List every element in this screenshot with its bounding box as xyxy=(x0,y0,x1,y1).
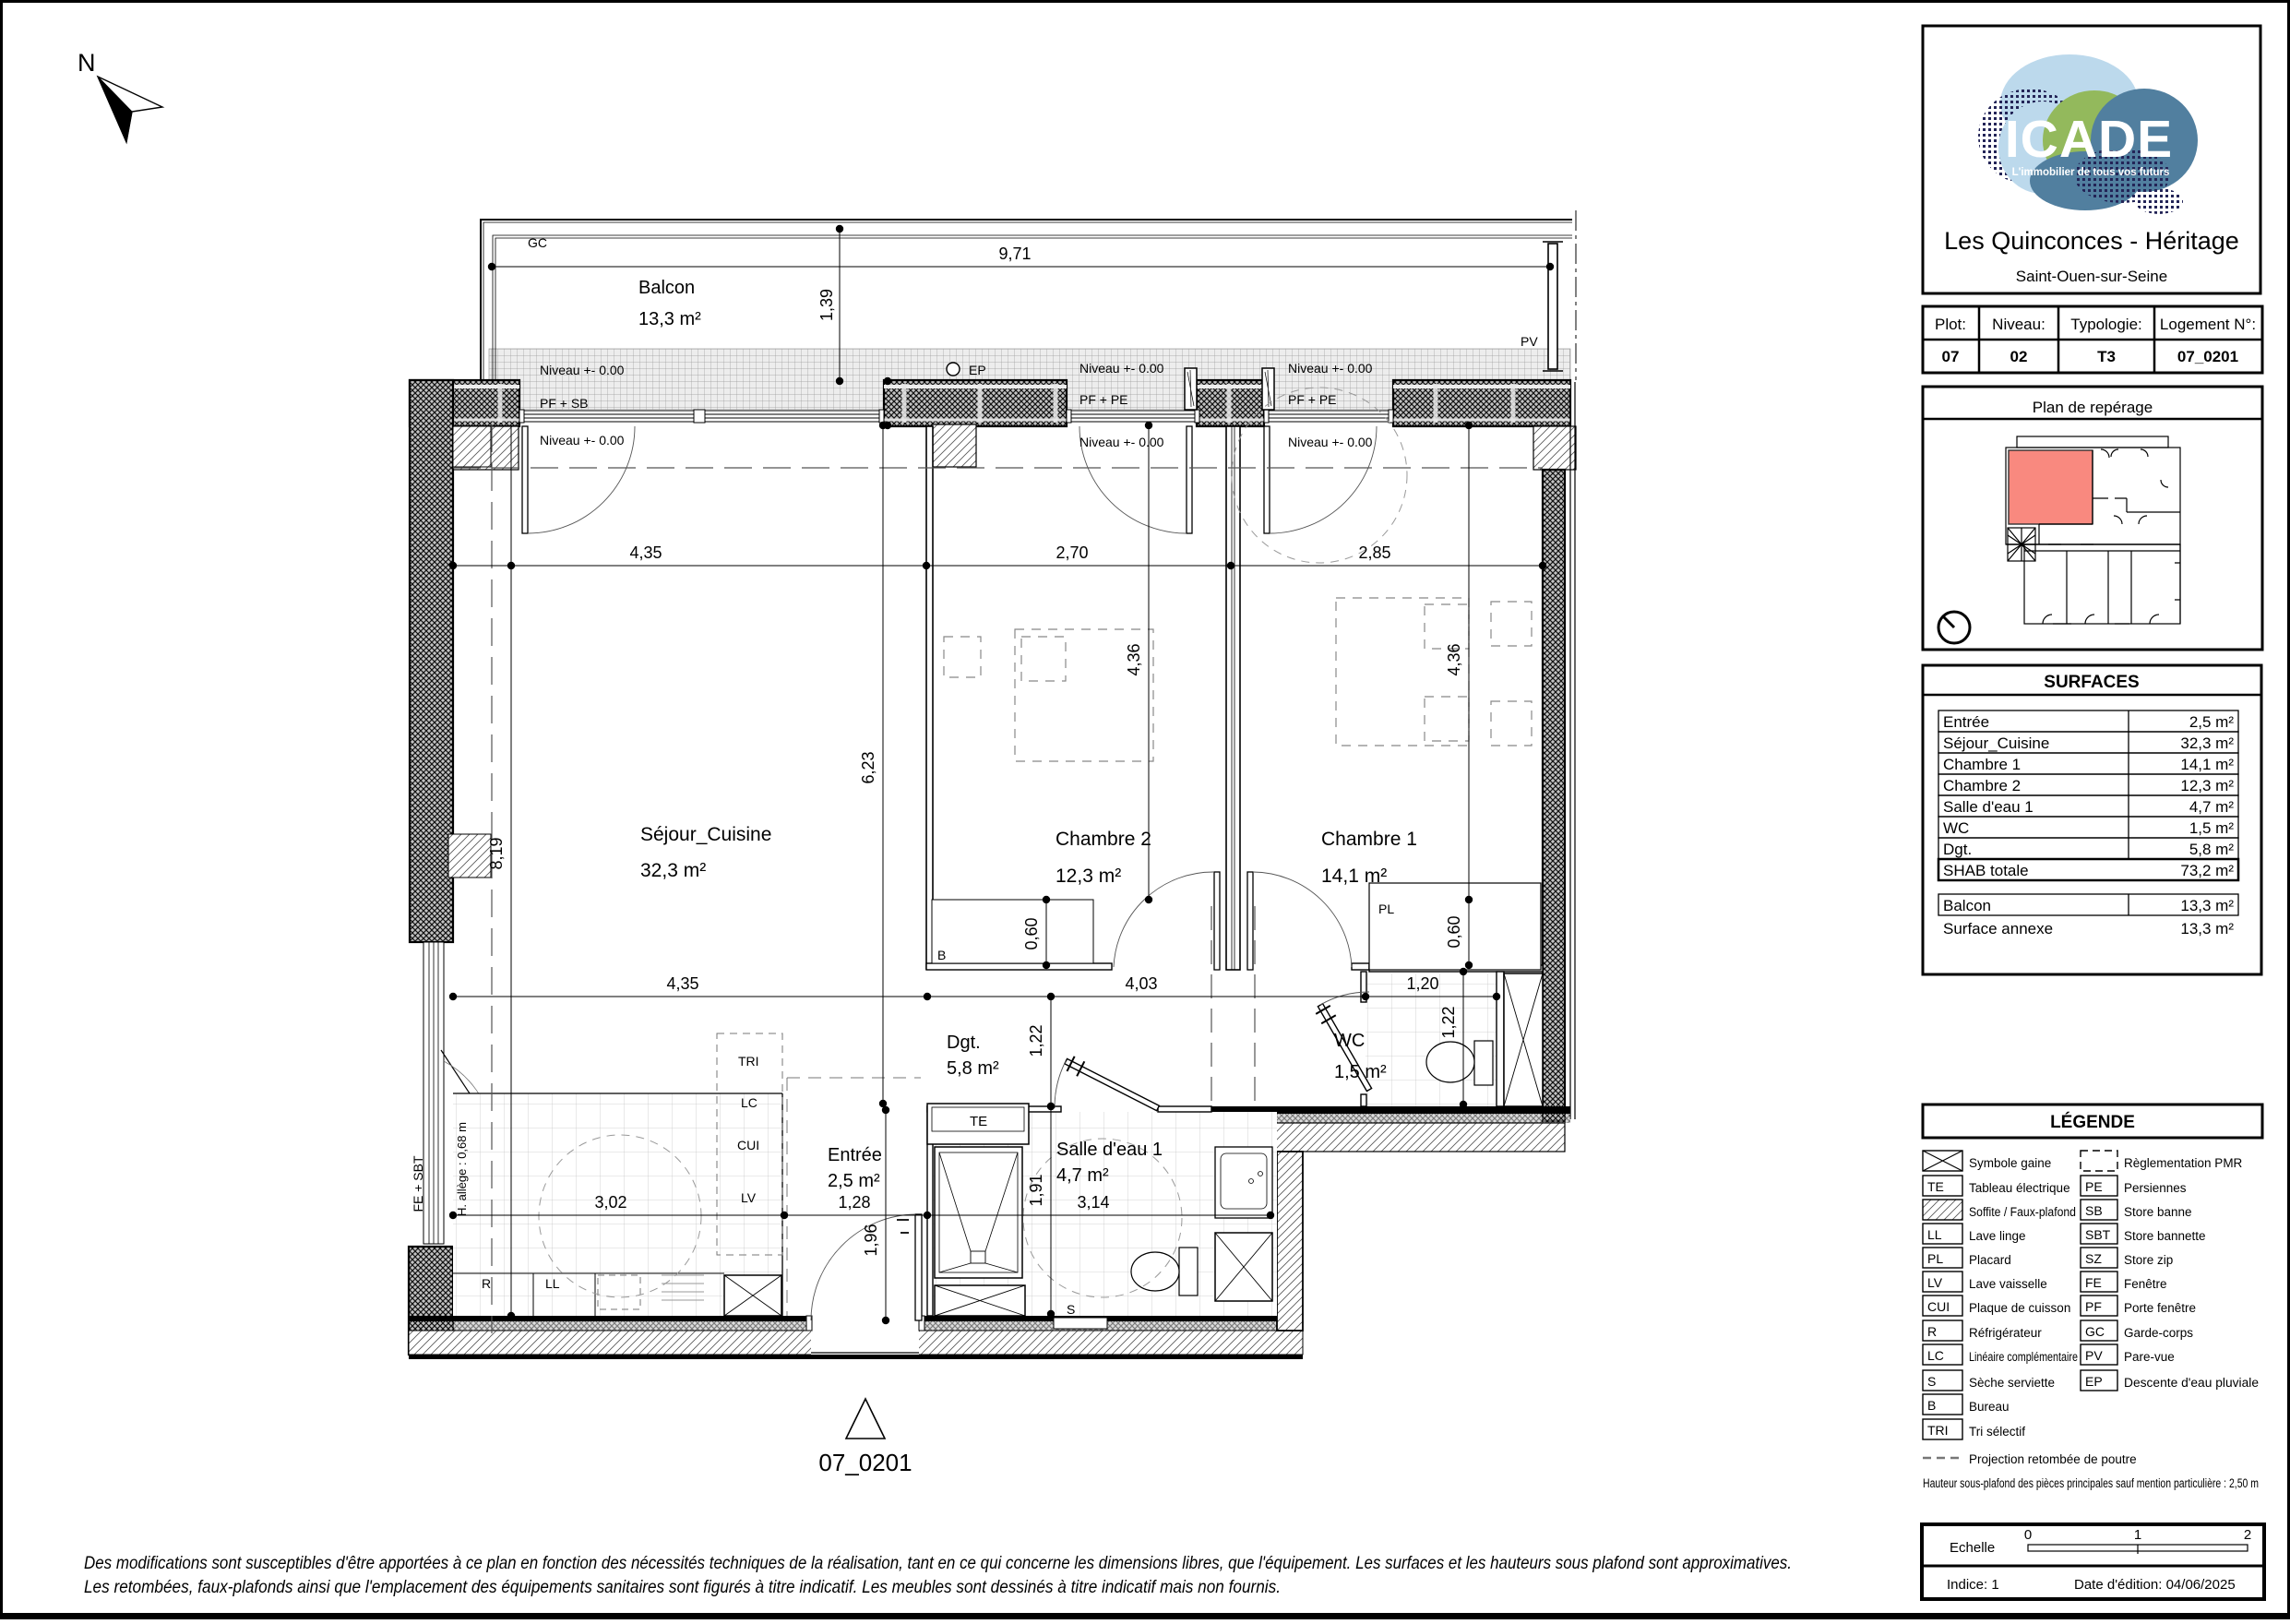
svg-text:Indice: 1: Indice: 1 xyxy=(1947,1577,1999,1593)
svg-text:Persiennes: Persiennes xyxy=(2124,1181,2187,1195)
svg-text:LL: LL xyxy=(545,1276,560,1291)
svg-text:S: S xyxy=(1927,1374,1936,1389)
svg-text:5,8 m²: 5,8 m² xyxy=(947,1058,999,1079)
svg-text:R: R xyxy=(482,1276,491,1291)
svg-text:8,19: 8,19 xyxy=(487,837,506,869)
svg-text:Salle d'eau 1: Salle d'eau 1 xyxy=(1943,798,2034,816)
svg-text:Placard: Placard xyxy=(1969,1253,2011,1267)
svg-text:Logement N°:: Logement N°: xyxy=(2160,316,2256,333)
svg-text:12,3 m²: 12,3 m² xyxy=(2180,777,2234,794)
svg-text:Lave linge: Lave linge xyxy=(1969,1229,2026,1243)
svg-text:0: 0 xyxy=(2024,1527,2032,1543)
svg-text:12,3 m²: 12,3 m² xyxy=(1056,866,1121,887)
svg-text:LV: LV xyxy=(741,1190,757,1205)
svg-text:1,96: 1,96 xyxy=(862,1224,880,1256)
svg-text:2,85: 2,85 xyxy=(1358,543,1390,562)
svg-text:4,36: 4,36 xyxy=(1445,643,1463,675)
svg-text:SZ: SZ xyxy=(2085,1251,2102,1266)
svg-text:4,35: 4,35 xyxy=(666,974,698,993)
svg-text:SHAB totale: SHAB totale xyxy=(1943,862,2029,879)
svg-text:SURFACES: SURFACES xyxy=(2044,673,2139,692)
svg-text:Séjour_Cuisine: Séjour_Cuisine xyxy=(1943,734,2049,752)
svg-text:EP: EP xyxy=(2085,1374,2103,1389)
svg-text:GC: GC xyxy=(2085,1324,2105,1339)
svg-text:Dgt.: Dgt. xyxy=(1943,841,1972,858)
svg-text:3,14: 3,14 xyxy=(1077,1193,1109,1212)
svg-text:Les Quinconces - Héritage: Les Quinconces - Héritage xyxy=(1944,227,2239,255)
svg-text:14,1 m²: 14,1 m² xyxy=(2180,756,2234,773)
svg-text:Tableau électrique: Tableau électrique xyxy=(1969,1181,2070,1195)
svg-text:Chambre 1: Chambre 1 xyxy=(1943,756,2021,773)
svg-text:LÉGENDE: LÉGENDE xyxy=(2050,1112,2135,1132)
svg-text:PL: PL xyxy=(1378,902,1394,916)
svg-text:4,7 m²: 4,7 m² xyxy=(1056,1165,1109,1186)
svg-text:Plot:: Plot: xyxy=(1935,316,1966,333)
svg-text:FE: FE xyxy=(2085,1275,2102,1290)
svg-text:Niveau +- 0.00: Niveau +- 0.00 xyxy=(1079,435,1164,449)
svg-text:1,28: 1,28 xyxy=(838,1193,870,1212)
svg-text:0,60: 0,60 xyxy=(1445,915,1463,948)
svg-text:13,3 m²: 13,3 m² xyxy=(2180,897,2234,914)
svg-text:Projection retombée de poutre: Projection retombée de poutre xyxy=(1969,1452,2137,1466)
svg-text:Saint-Ouen-sur-Seine: Saint-Ouen-sur-Seine xyxy=(2016,268,2167,285)
svg-text:H. allège : 0,68 m: H. allège : 0,68 m xyxy=(455,1122,469,1216)
svg-text:Des modifications sont suscept: Des modifications sont susceptibles d'êt… xyxy=(84,1554,1792,1573)
svg-text:CUI: CUI xyxy=(1927,1299,1950,1314)
svg-text:LL: LL xyxy=(1927,1227,1942,1242)
svg-text:Store zip: Store zip xyxy=(2124,1253,2173,1267)
svg-text:WC: WC xyxy=(1943,819,1969,837)
svg-text:Sèche serviette: Sèche serviette xyxy=(1969,1376,2055,1390)
svg-text:Balcon: Balcon xyxy=(638,278,695,298)
svg-text:Règlementation PMR: Règlementation PMR xyxy=(2124,1156,2243,1170)
svg-text:Niveau +- 0.00: Niveau +- 0.00 xyxy=(1288,361,1373,376)
svg-text:Chambre 2: Chambre 2 xyxy=(1056,829,1151,850)
svg-text:PV: PV xyxy=(2085,1348,2103,1363)
svg-text:1: 1 xyxy=(2134,1527,2141,1543)
svg-text:Date d'édition: 04/06/2025: Date d'édition: 04/06/2025 xyxy=(2074,1577,2236,1593)
svg-text:32,3 m²: 32,3 m² xyxy=(2180,734,2234,752)
svg-text:Store bannette: Store bannette xyxy=(2124,1229,2206,1243)
svg-text:73,2 m²: 73,2 m² xyxy=(2180,862,2234,879)
svg-text:32,3 m²: 32,3 m² xyxy=(640,860,706,881)
svg-text:4,36: 4,36 xyxy=(1125,643,1143,675)
svg-text:PL: PL xyxy=(1927,1251,1943,1266)
svg-text:CUI: CUI xyxy=(737,1138,759,1152)
svg-text:PF + PE: PF + PE xyxy=(1288,392,1337,407)
svg-text:2,5 m²: 2,5 m² xyxy=(828,1171,880,1191)
svg-text:Lave vaisselle: Lave vaisselle xyxy=(1969,1277,2047,1291)
svg-text:FE + SBT: FE + SBT xyxy=(411,1155,425,1212)
svg-text:Garde-corps: Garde-corps xyxy=(2124,1326,2193,1340)
svg-text:Echelle: Echelle xyxy=(1950,1540,1995,1556)
svg-text:Entrée: Entrée xyxy=(828,1145,882,1165)
svg-text:07_0201: 07_0201 xyxy=(2177,348,2238,365)
svg-text:4,35: 4,35 xyxy=(629,543,662,562)
svg-text:Niveau +- 0.00: Niveau +- 0.00 xyxy=(540,363,625,377)
svg-text:Plan de repérage: Plan de repérage xyxy=(2033,399,2153,416)
svg-text:Linéaire complémentaire: Linéaire complémentaire xyxy=(1969,1350,2078,1364)
svg-text:Bureau: Bureau xyxy=(1969,1400,2010,1414)
svg-text:TE: TE xyxy=(970,1114,987,1129)
svg-text:B: B xyxy=(937,948,946,962)
svg-text:13,3 m²: 13,3 m² xyxy=(638,309,701,329)
svg-text:Hauteur sous-plafond des pièce: Hauteur sous-plafond des pièces principa… xyxy=(1923,1476,2259,1490)
svg-text:R: R xyxy=(1927,1324,1937,1339)
svg-text:L'immobilier de tous vos futur: L'immobilier de tous vos futurs xyxy=(2012,167,2170,178)
svg-text:9,71: 9,71 xyxy=(998,245,1031,263)
svg-text:Descente d'eau pluviale: Descente d'eau pluviale xyxy=(2124,1376,2259,1390)
svg-text:T3: T3 xyxy=(2097,348,2116,365)
svg-text:LV: LV xyxy=(1927,1275,1943,1290)
svg-text:PE: PE xyxy=(2085,1179,2103,1194)
svg-text:2,70: 2,70 xyxy=(1056,543,1088,562)
svg-text:B: B xyxy=(1927,1398,1936,1413)
svg-text:TRI: TRI xyxy=(738,1054,759,1069)
svg-text:Réfrigérateur: Réfrigérateur xyxy=(1969,1326,2042,1340)
svg-text:Niveau +- 0.00: Niveau +- 0.00 xyxy=(540,433,625,448)
svg-text:TRI: TRI xyxy=(1927,1423,1949,1438)
svg-text:5,8 m²: 5,8 m² xyxy=(2189,841,2235,858)
svg-text:PF: PF xyxy=(2085,1299,2102,1314)
svg-text:Niveau:: Niveau: xyxy=(1992,316,2045,333)
svg-text:1,91: 1,91 xyxy=(1027,1174,1045,1206)
svg-text:N: N xyxy=(78,49,96,77)
svg-text:Niveau +- 0.00: Niveau +- 0.00 xyxy=(1288,435,1373,449)
svg-text:Typologie:: Typologie: xyxy=(2070,316,2142,333)
svg-text:4,7 m²: 4,7 m² xyxy=(2189,798,2235,816)
svg-text:1,22: 1,22 xyxy=(1027,1024,1045,1057)
svg-text:13,3 m²: 13,3 m² xyxy=(2180,920,2234,937)
svg-text:Store banne: Store banne xyxy=(2124,1205,2192,1219)
svg-text:Fenêtre: Fenêtre xyxy=(2124,1277,2167,1291)
svg-text:Symbole gaine: Symbole gaine xyxy=(1969,1156,2051,1170)
svg-text:SBT: SBT xyxy=(2085,1227,2111,1242)
svg-text:Séjour_Cuisine: Séjour_Cuisine xyxy=(640,824,771,845)
svg-text:PF + SB: PF + SB xyxy=(540,396,589,411)
svg-text:LC: LC xyxy=(1927,1348,1944,1363)
svg-text:Soffite / Faux-plafond: Soffite / Faux-plafond xyxy=(1969,1205,2076,1219)
svg-text:Chambre 2: Chambre 2 xyxy=(1943,777,2021,794)
svg-text:6,23: 6,23 xyxy=(859,751,877,783)
svg-text:ICADE: ICADE xyxy=(2005,110,2173,169)
svg-text:07: 07 xyxy=(1942,348,1960,365)
svg-text:Plaque de cuisson: Plaque de cuisson xyxy=(1969,1301,2070,1315)
svg-text:1,5 m²: 1,5 m² xyxy=(2189,819,2235,837)
svg-text:Salle d'eau 1: Salle d'eau 1 xyxy=(1056,1140,1163,1160)
svg-text:Tri sélectif: Tri sélectif xyxy=(1969,1425,2025,1439)
svg-text:1,20: 1,20 xyxy=(1406,974,1438,993)
svg-text:Dgt.: Dgt. xyxy=(947,1033,981,1053)
svg-text:4,03: 4,03 xyxy=(1125,974,1157,993)
svg-text:Les retombées, faux-plafonds a: Les retombées, faux-plafonds ainsi que l… xyxy=(84,1578,1281,1597)
svg-text:EP: EP xyxy=(969,363,986,377)
svg-text:TE: TE xyxy=(1927,1179,1944,1194)
svg-text:Porte fenêtre: Porte fenêtre xyxy=(2124,1301,2196,1315)
svg-text:GC: GC xyxy=(528,235,547,250)
svg-text:LC: LC xyxy=(741,1095,757,1110)
svg-text:2,5 m²: 2,5 m² xyxy=(2189,713,2235,731)
svg-text:07_0201: 07_0201 xyxy=(818,1449,912,1476)
svg-text:PV: PV xyxy=(1521,334,1538,349)
svg-text:14,1 m²: 14,1 m² xyxy=(1321,866,1387,887)
svg-text:1,5 m²: 1,5 m² xyxy=(1334,1062,1387,1082)
svg-text:2: 2 xyxy=(2244,1527,2251,1543)
svg-text:0,60: 0,60 xyxy=(1022,917,1041,949)
svg-text:S: S xyxy=(1067,1302,1075,1317)
svg-text:1,39: 1,39 xyxy=(817,289,836,321)
svg-text:Chambre 1: Chambre 1 xyxy=(1321,829,1417,850)
svg-text:Surface annexe: Surface annexe xyxy=(1943,920,2053,937)
svg-text:02: 02 xyxy=(2010,348,2028,365)
svg-text:PF + PE: PF + PE xyxy=(1079,392,1128,407)
svg-text:WC: WC xyxy=(1334,1031,1365,1051)
svg-text:Pare-vue: Pare-vue xyxy=(2124,1350,2175,1364)
svg-text:3,02: 3,02 xyxy=(594,1193,626,1212)
svg-text:1,22: 1,22 xyxy=(1439,1006,1458,1038)
svg-text:Balcon: Balcon xyxy=(1943,897,1991,914)
svg-text:Entrée: Entrée xyxy=(1943,713,1989,731)
svg-text:Niveau +- 0.00: Niveau +- 0.00 xyxy=(1079,361,1164,376)
svg-text:SB: SB xyxy=(2085,1203,2103,1218)
